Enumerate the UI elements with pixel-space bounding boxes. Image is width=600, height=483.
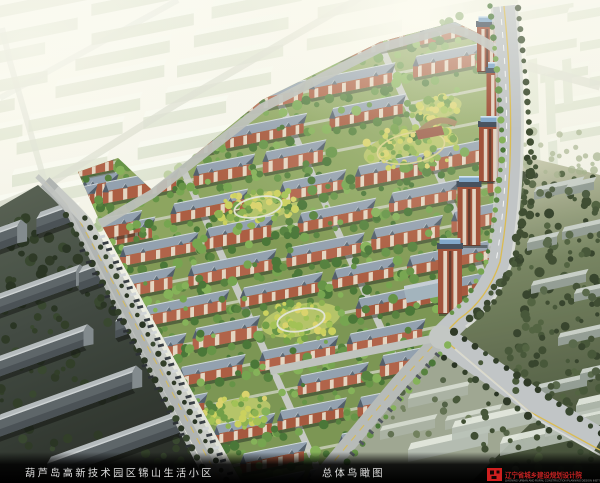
svg-text:LIAONING URBAN AND RURAL CONST: LIAONING URBAN AND RURAL CONSTRUCTION PL… — [505, 479, 600, 483]
svg-text:辽宁省城乡建设规划设计院: 辽宁省城乡建设规划设计院 — [505, 471, 582, 480]
svg-text:葫芦岛高新技术园区锦山生活小区: 葫芦岛高新技术园区锦山生活小区 — [25, 467, 214, 480]
svg-text:总体鸟瞰图: 总体鸟瞰图 — [322, 467, 385, 480]
